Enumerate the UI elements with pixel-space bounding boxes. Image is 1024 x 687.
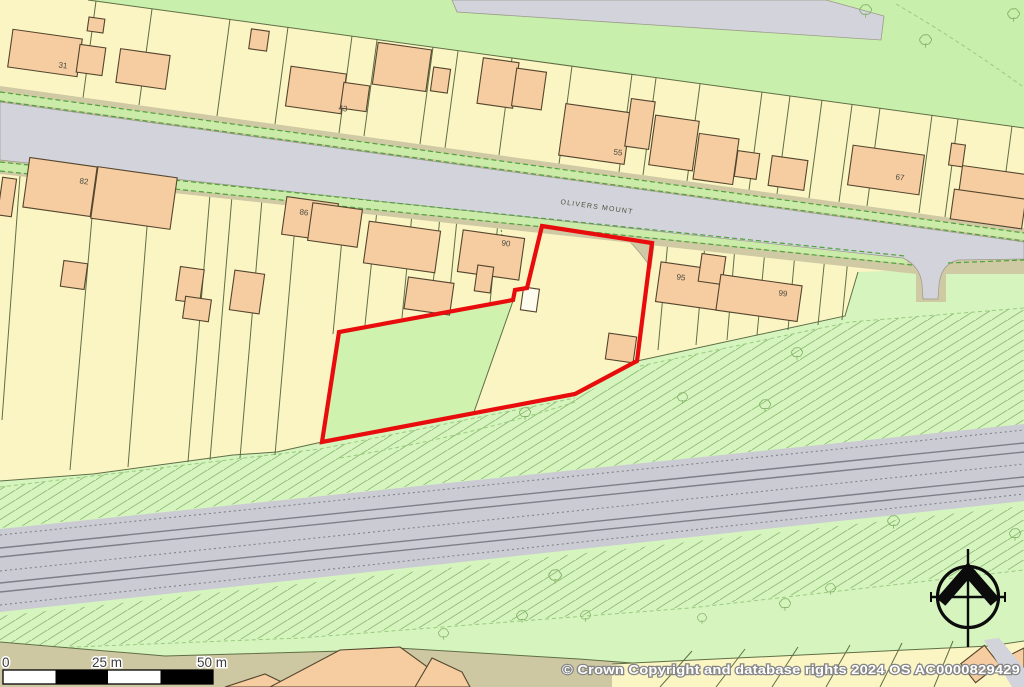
scale-tick-50: 50 m — [197, 655, 227, 670]
house-label-86: 86 — [299, 207, 309, 217]
map-canvas: OLIVERS MOUNT — [0, 0, 1024, 687]
house-label-90: 90 — [501, 238, 511, 248]
house-label-99: 99 — [778, 288, 788, 298]
house-label-95: 95 — [676, 272, 686, 282]
site-plan-map: OLIVERS MOUNT — [0, 0, 1024, 687]
house-label-43: 43 — [338, 103, 348, 113]
house-label-31: 31 — [58, 60, 68, 70]
house-label-55: 55 — [613, 147, 623, 157]
copyright-text: © Crown Copyright and database rights 20… — [562, 662, 1020, 677]
house-label-67: 67 — [895, 172, 905, 182]
house-label-82: 82 — [79, 176, 89, 186]
scale-tick-25: 25 m — [92, 655, 122, 670]
scale-tick-0: 0 — [2, 655, 10, 670]
